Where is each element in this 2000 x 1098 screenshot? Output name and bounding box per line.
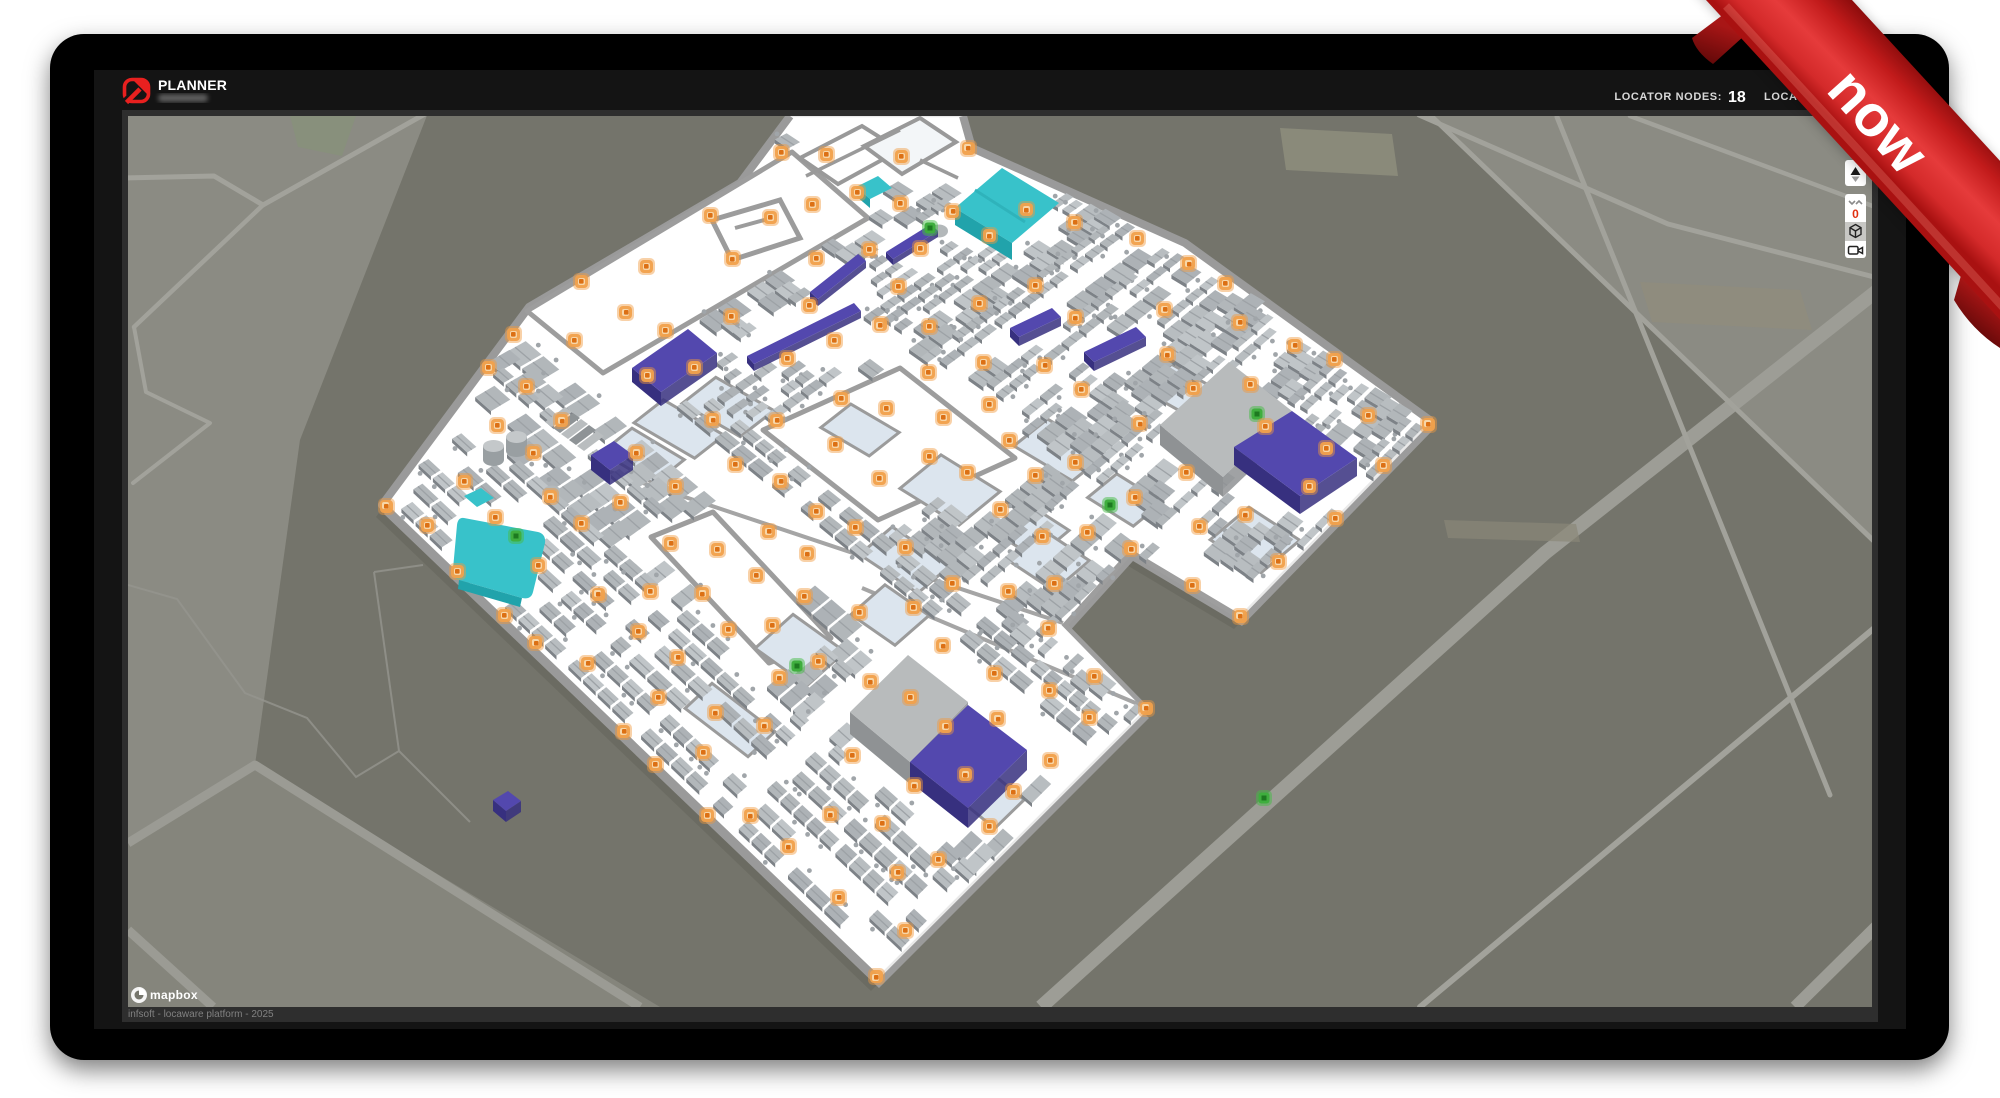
svg-text:mapbox: mapbox: [150, 988, 198, 1002]
svg-text:LOCATOR NODES:: LOCATOR NODES:: [1614, 91, 1722, 103]
svg-text:PLANNER: PLANNER: [158, 77, 227, 93]
svg-text:infsoft - locaware platform -: infsoft - locaware platform - 2025: [128, 1009, 274, 1020]
svg-text:0: 0: [1852, 207, 1859, 221]
svg-text:18: 18: [1728, 89, 1746, 106]
